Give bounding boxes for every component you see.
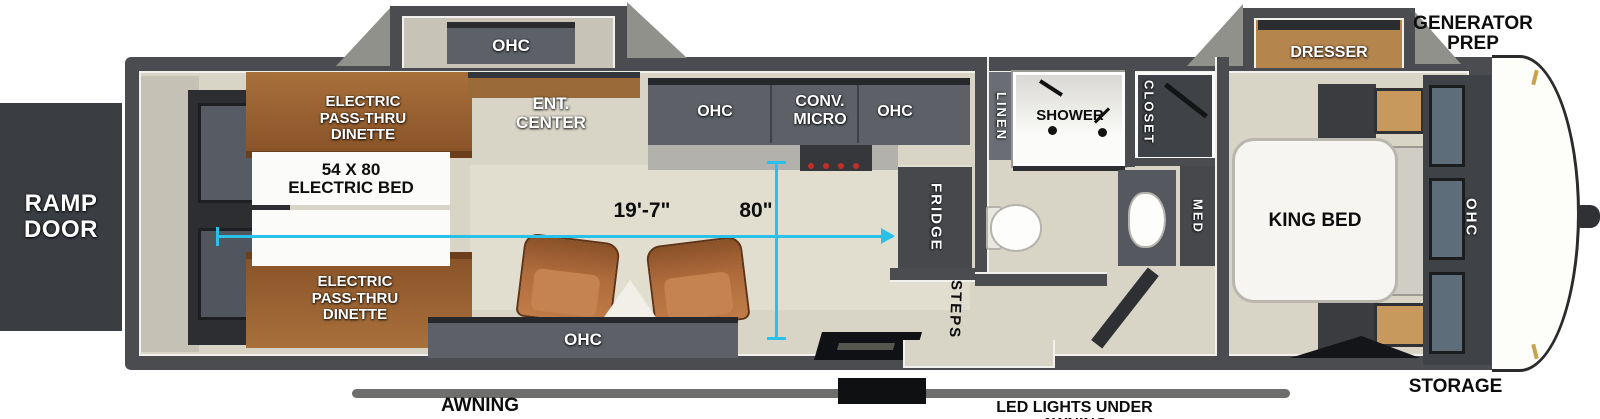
medicine-cabinet-label: MED xyxy=(1190,199,1204,234)
entertainment-center-label: ENT. CENTER xyxy=(505,95,597,132)
slideout-ohc-label: OHC xyxy=(492,37,530,56)
dresser-label: DRESSER xyxy=(1256,44,1402,62)
shower-head-icon xyxy=(1098,128,1107,137)
kitchen-ohc-right-label: OHC xyxy=(862,103,928,121)
recliner-cushion xyxy=(663,271,734,321)
width-dimension-line xyxy=(775,163,778,339)
awning-label: AWNING xyxy=(433,396,527,416)
closet-label: CLOSET xyxy=(1141,80,1155,145)
length-dimension-line xyxy=(218,235,893,238)
king-bed: KING BED xyxy=(1232,138,1398,303)
ramp-door: RAMP DOOR xyxy=(0,103,122,331)
interior-width-value: 80" xyxy=(724,200,788,222)
nightstand-top xyxy=(1374,88,1424,134)
slideout-overhead-cabinet: OHC xyxy=(447,22,575,64)
dinette-bottom-label: ELECTRIC PASS-THRU DINETTE xyxy=(275,274,435,324)
bedroom-wall xyxy=(1215,57,1229,356)
dimension-arrow-icon xyxy=(881,228,895,244)
refrigerator-label: FRIDGE xyxy=(927,183,944,252)
awning-led-segment xyxy=(838,378,926,404)
kitchen-ohc-left-label: OHC xyxy=(681,103,749,121)
medicine-cabinet: MED xyxy=(1180,166,1215,266)
dimension-end-cap xyxy=(216,227,219,246)
dimension-end-cap xyxy=(767,337,786,340)
wardrobe-door-pane xyxy=(1429,272,1465,354)
linen-cabinet: LINEN xyxy=(989,72,1013,160)
bedroom-cabinet-top xyxy=(1318,84,1376,138)
electric-bed-surface xyxy=(252,210,450,266)
dresser-shadow xyxy=(1258,20,1400,30)
hitch-icon xyxy=(1577,205,1600,228)
bathroom-wall xyxy=(975,57,989,285)
cooktop-knobs xyxy=(808,163,814,169)
cabinet-divider xyxy=(770,85,772,143)
sofa-overhead-cabinet: OHC xyxy=(428,317,738,358)
convection-microwave-label: CONV. MICRO xyxy=(779,93,861,128)
sofa-ohc-label: OHC xyxy=(564,331,602,350)
shower-glass-divider xyxy=(1013,166,1125,171)
slide-wall-shading-right xyxy=(627,2,687,58)
dinette-top-label: ELECTRIC PASS-THRU DINETTE xyxy=(283,94,443,144)
recliner-cushion xyxy=(530,268,601,318)
electric-bed-label-box: 54 X 80 ELECTRIC BED xyxy=(252,152,450,205)
interior-length-value: 19'-7" xyxy=(592,200,692,222)
steps-label: STEPS xyxy=(946,280,964,340)
dimension-end-cap xyxy=(767,161,786,164)
storage-label: STORAGE xyxy=(1403,377,1508,397)
rv-floorplan: RAMP DOOR OHC ELECTRIC PASS-THRU DINETTE… xyxy=(0,0,1600,419)
refrigerator: FRIDGE xyxy=(898,167,972,268)
front-cap xyxy=(1492,55,1580,372)
wardrobe-door-pane xyxy=(1429,85,1465,167)
bathroom-wall xyxy=(1125,57,1135,167)
entry-door-mat-step xyxy=(837,343,895,350)
slide-wall-shading-left xyxy=(336,8,390,66)
toilet xyxy=(990,204,1042,252)
recliner-left xyxy=(515,232,621,327)
bathroom-wall xyxy=(975,272,1107,286)
king-bed-label: KING BED xyxy=(1269,210,1362,232)
closet-wall xyxy=(1135,158,1215,166)
led-lights-label: LED LIGHTS UNDER AWNING xyxy=(962,400,1187,419)
wardrobe-ohc-label: OHC xyxy=(1462,198,1479,237)
generator-prep-label: GENERATOR PREP xyxy=(1398,14,1548,54)
nightstand-bottom xyxy=(1374,303,1426,347)
wardrobe-door-pane xyxy=(1429,178,1465,260)
bathroom-sink xyxy=(1128,192,1166,248)
shower-drain-icon xyxy=(1048,126,1057,135)
linen-label: LINEN xyxy=(994,92,1008,141)
steps-recess xyxy=(903,340,1055,368)
